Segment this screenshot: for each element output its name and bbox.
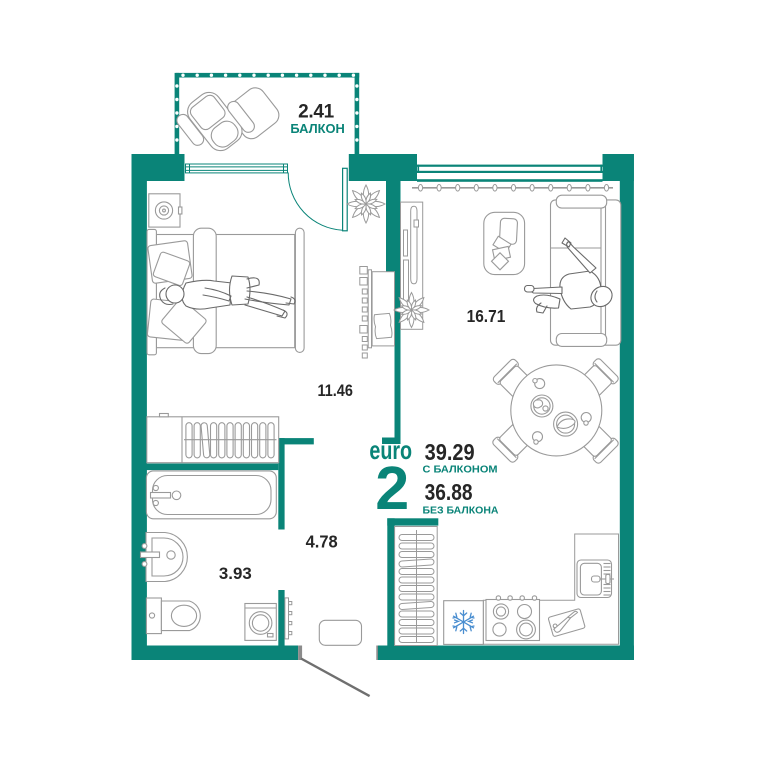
svg-text:4.78: 4.78 (306, 531, 338, 551)
svg-text:16.71: 16.71 (467, 306, 506, 326)
svg-text:36.88: 36.88 (425, 479, 473, 505)
svg-text:С БАЛКОНОМ: С БАЛКОНОМ (423, 464, 498, 476)
svg-text:БАЛКОН: БАЛКОН (290, 121, 344, 136)
svg-text:2: 2 (375, 454, 409, 522)
svg-text:11.46: 11.46 (318, 381, 353, 400)
svg-text:3.93: 3.93 (219, 564, 252, 583)
svg-text:2.41: 2.41 (298, 102, 335, 123)
svg-text:39.29: 39.29 (425, 439, 475, 465)
svg-text:БЕЗ БАЛКОНА: БЕЗ БАЛКОНА (423, 504, 499, 516)
